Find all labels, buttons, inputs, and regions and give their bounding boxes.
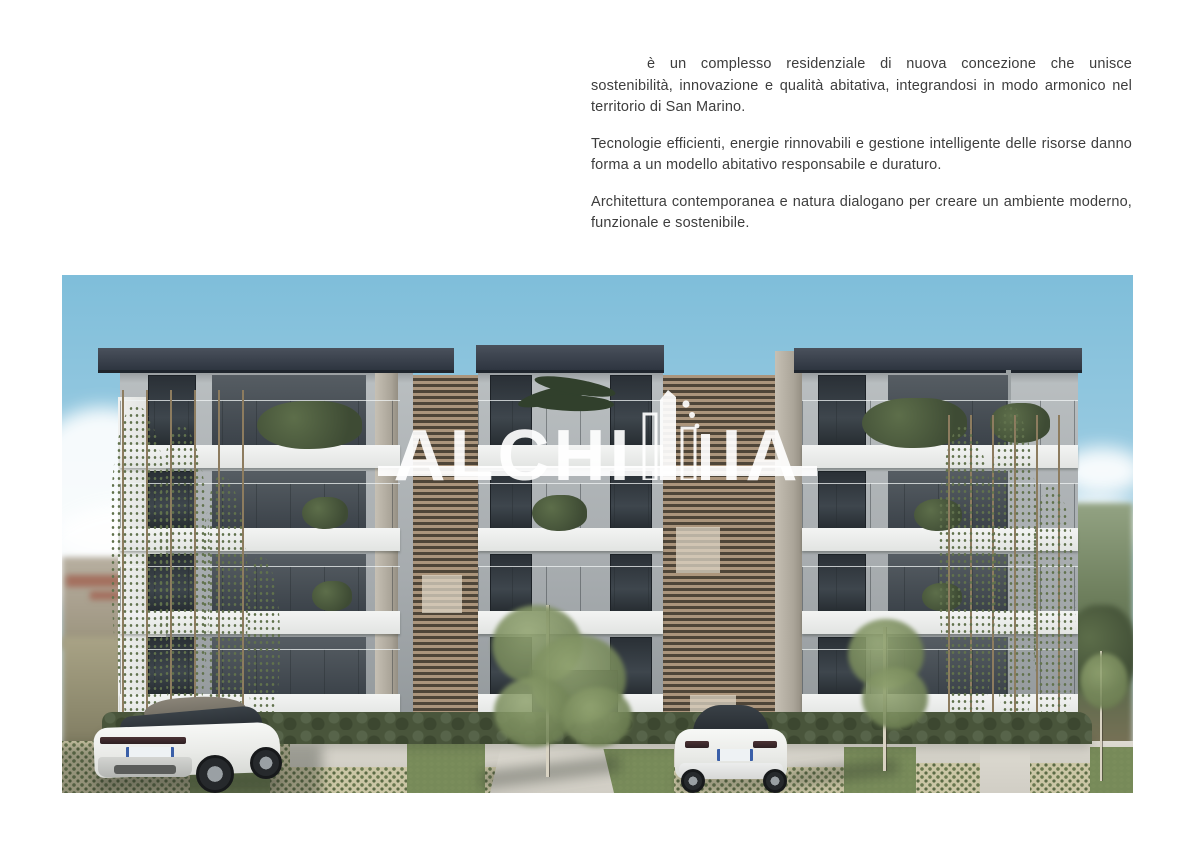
white-sedan — [675, 705, 787, 793]
roof-slab-left — [98, 348, 454, 373]
roof-slab-center — [476, 345, 664, 373]
balcony-glass — [478, 566, 663, 612]
logo-text-left: ALCHI — [394, 420, 634, 492]
alchimia-watermark-logo: ALCHI IA — [394, 384, 802, 492]
fascia-band — [478, 528, 663, 551]
grass-strip — [407, 743, 485, 793]
tree-foliage — [1080, 653, 1128, 709]
louvre-open-slat — [422, 575, 462, 613]
sedan-taillight — [753, 741, 777, 748]
balcony-plant — [302, 497, 348, 529]
intro-text-block: è un complesso residenziale di nuova con… — [591, 54, 1132, 250]
suv-diffuser — [114, 765, 176, 774]
suv-wheel — [250, 747, 282, 779]
sedan-taillight — [685, 741, 709, 748]
brochure-page: è un complesso residenziale di nuova con… — [0, 0, 1193, 851]
sedan-wheel — [763, 769, 787, 793]
sedan-wheel — [681, 769, 705, 793]
roof-slab-right — [794, 348, 1082, 373]
building-render-image: ALCHI IA — [62, 275, 1133, 793]
suv-taillight — [100, 737, 186, 744]
grass-strip — [1090, 747, 1133, 793]
intro-paragraph-1: è un complesso residenziale di nuova con… — [591, 54, 1132, 119]
intro-paragraph-3: Architettura contemporanea e natura dial… — [591, 192, 1132, 235]
logo-horizontal-bar — [378, 466, 818, 476]
side-walkway — [980, 741, 1030, 793]
sedan-license-plate — [717, 749, 753, 761]
white-suv — [92, 695, 284, 793]
balcony-plant — [532, 495, 587, 531]
balcony-plant — [312, 581, 352, 611]
tree-foliage — [562, 687, 632, 747]
tree-foliage — [862, 667, 928, 729]
suv-wheel — [196, 755, 234, 793]
intro-paragraph-2: Tecnologie efficienti, energie rinnovabi… — [591, 134, 1132, 177]
logo-text-right: IA — [721, 420, 801, 492]
balcony-plant — [257, 401, 362, 449]
louvre-open-slat — [676, 527, 720, 573]
